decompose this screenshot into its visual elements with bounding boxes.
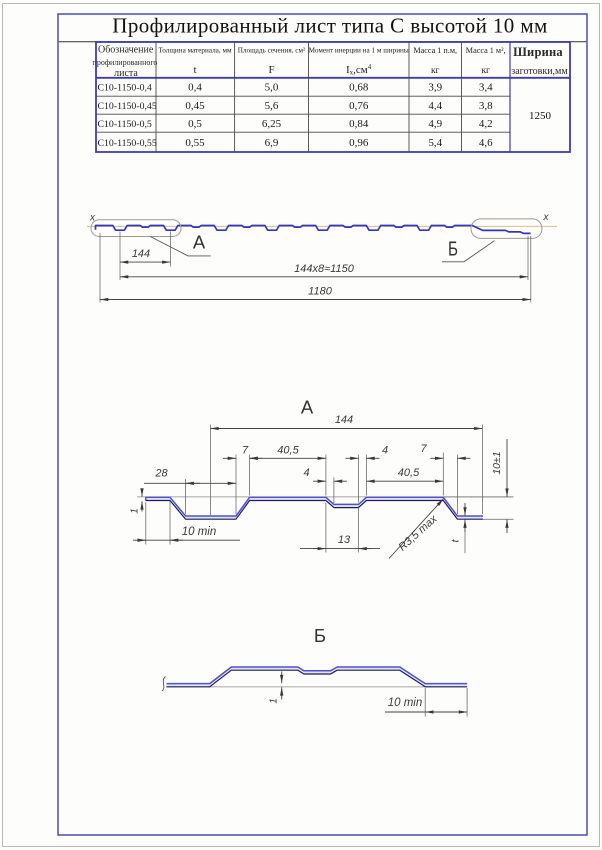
svg-text:С10-1150-0,5: С10-1150-0,5 — [98, 119, 152, 130]
svg-text:4: 4 — [382, 445, 388, 457]
svg-text:3,4: 3,4 — [479, 82, 493, 94]
svg-text:0,76: 0,76 — [349, 100, 369, 112]
svg-text:Ширина: Ширина — [513, 45, 563, 59]
svg-text:0,5: 0,5 — [188, 118, 202, 130]
svg-text:1: 1 — [269, 698, 280, 704]
svg-text:0,45: 0,45 — [185, 100, 205, 112]
svg-text:7: 7 — [242, 444, 249, 456]
svg-text:заготовки,мм: заготовки,мм — [511, 66, 568, 77]
svg-text:1180: 1180 — [308, 285, 333, 297]
svg-text:10 min: 10 min — [388, 697, 423, 709]
svg-text:5,4: 5,4 — [428, 137, 442, 149]
svg-text:5,0: 5,0 — [265, 82, 279, 94]
svg-text:144: 144 — [335, 414, 353, 426]
svg-text:40,5: 40,5 — [277, 445, 299, 457]
svg-text:Ix,см4: Ix,см4 — [346, 63, 372, 77]
svg-text:1: 1 — [130, 508, 141, 514]
svg-text:С10-1150-0,55: С10-1150-0,55 — [98, 138, 157, 149]
svg-text:0,96: 0,96 — [349, 137, 369, 149]
svg-text:10±1: 10±1 — [491, 451, 503, 474]
svg-text:кг: кг — [431, 66, 440, 76]
svg-text:4,2: 4,2 — [479, 118, 493, 130]
svg-text:С10-1150-0,45: С10-1150-0,45 — [98, 101, 157, 112]
svg-text:3,8: 3,8 — [479, 100, 493, 112]
svg-text:профилированного: профилированного — [93, 58, 158, 67]
svg-text:10 min: 10 min — [182, 526, 217, 538]
svg-text:5,6: 5,6 — [265, 100, 279, 112]
svg-text:А: А — [301, 397, 314, 418]
svg-text:4,9: 4,9 — [428, 118, 442, 130]
svg-text:Б: Б — [448, 238, 458, 260]
svg-text:F: F — [268, 64, 274, 76]
svg-text:28: 28 — [154, 468, 168, 480]
svg-text:Момент инерции на 1 м ширины: Момент инерции на 1 м ширины — [309, 47, 409, 55]
svg-text:6,25: 6,25 — [262, 118, 282, 130]
svg-text:листа: листа — [114, 68, 138, 79]
svg-text:1250: 1250 — [529, 110, 552, 122]
svg-text:Б: Б — [314, 625, 326, 646]
svg-text:t: t — [193, 64, 196, 76]
svg-text:Масса 1 п.м,: Масса 1 п.м, — [413, 46, 457, 55]
svg-text:x: x — [543, 212, 550, 223]
svg-text:Масса 1 м²,: Масса 1 м², — [466, 46, 506, 55]
svg-text:А: А — [193, 231, 206, 252]
svg-text:Профилированный лист типа С вы: Профилированный лист типа С высотой 10 м… — [112, 14, 547, 38]
svg-text:4,6: 4,6 — [479, 137, 493, 149]
svg-text:7: 7 — [420, 443, 427, 455]
svg-text:кг: кг — [481, 66, 490, 76]
svg-text:Обозначение: Обозначение — [98, 45, 154, 56]
svg-text:0,4: 0,4 — [188, 82, 202, 94]
svg-text:144х8≈1150: 144х8≈1150 — [294, 263, 355, 275]
svg-text:144: 144 — [132, 248, 150, 260]
svg-text:Толщина материала, мм: Толщина материала, мм — [158, 47, 232, 55]
svg-text:С10-1150-0,4: С10-1150-0,4 — [98, 83, 152, 94]
svg-text:4: 4 — [303, 467, 309, 479]
svg-text:0,84: 0,84 — [349, 118, 369, 130]
svg-text:4,4: 4,4 — [428, 100, 442, 112]
svg-text:Площадь сечения, см²: Площадь сечения, см² — [238, 47, 305, 55]
svg-text:13: 13 — [338, 534, 351, 546]
svg-text:x: x — [89, 213, 96, 224]
svg-text:6,9: 6,9 — [265, 137, 279, 149]
svg-text:3,9: 3,9 — [428, 82, 442, 94]
svg-text:40,5: 40,5 — [398, 467, 420, 479]
svg-text:t: t — [450, 538, 462, 542]
svg-text:0,68: 0,68 — [349, 82, 369, 94]
svg-text:0,55: 0,55 — [185, 137, 205, 149]
svg-text:R3,5 max: R3,5 max — [396, 513, 439, 554]
